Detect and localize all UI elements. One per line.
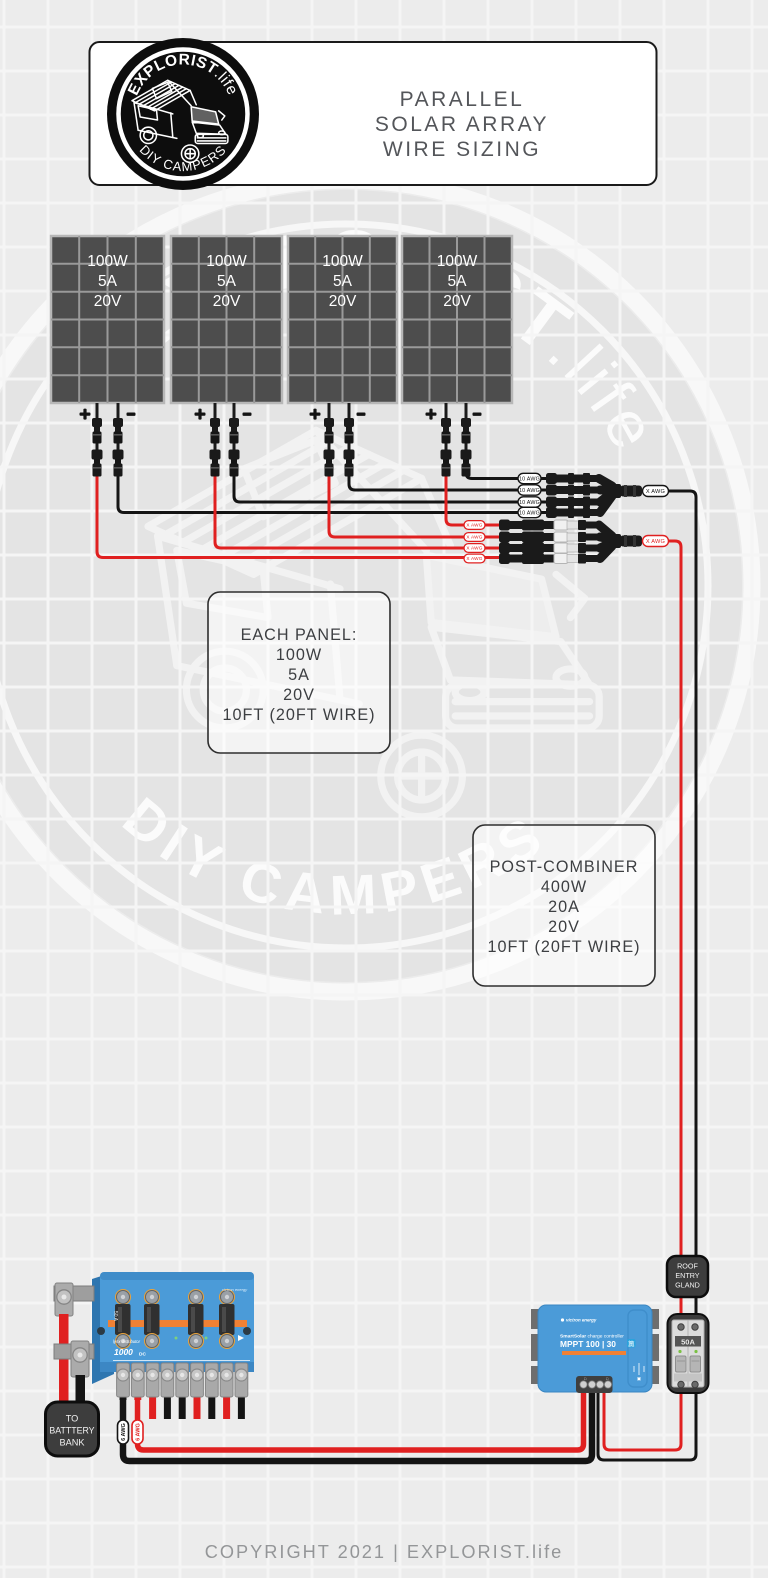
svg-text:DC: DC bbox=[139, 1352, 146, 1358]
svg-text:5A: 5A bbox=[333, 273, 353, 290]
svg-text:SOLAR ARRAY: SOLAR ARRAY bbox=[375, 113, 549, 136]
svg-text:100W: 100W bbox=[276, 646, 322, 664]
svg-text:ROOF: ROOF bbox=[677, 1262, 698, 1271]
svg-text:20V: 20V bbox=[94, 293, 122, 310]
svg-text:X AWG: X AWG bbox=[646, 489, 665, 495]
svg-text:10FT (20FT WIRE): 10FT (20FT WIRE) bbox=[487, 938, 640, 956]
svg-text:BANK: BANK bbox=[59, 1438, 85, 1448]
svg-text:victron energy: victron energy bbox=[222, 1287, 248, 1292]
svg-text:PARALLEL: PARALLEL bbox=[400, 88, 525, 111]
svg-text:X AWG: X AWG bbox=[646, 539, 665, 545]
svg-text:5A: 5A bbox=[98, 273, 118, 290]
svg-text:10FT (20FT WIRE): 10FT (20FT WIRE) bbox=[222, 706, 375, 724]
svg-text:EACH PANEL:: EACH PANEL: bbox=[241, 626, 358, 644]
svg-text:20V: 20V bbox=[283, 686, 315, 704]
svg-text:20A: 20A bbox=[548, 898, 580, 916]
svg-text:6 AWG: 6 AWG bbox=[121, 1423, 127, 1441]
svg-text:100W: 100W bbox=[206, 253, 247, 270]
svg-text:50 A: 50 A bbox=[112, 1311, 118, 1322]
svg-text:100W: 100W bbox=[87, 253, 128, 270]
svg-text:10 AWG: 10 AWG bbox=[519, 510, 540, 516]
svg-text:5A: 5A bbox=[288, 666, 310, 684]
svg-text:6 AWG: 6 AWG bbox=[136, 1423, 142, 1441]
svg-text:TO: TO bbox=[66, 1414, 79, 1424]
svg-text:20V: 20V bbox=[329, 293, 357, 310]
svg-text:MPPT 100 | 30: MPPT 100 | 30 bbox=[560, 1339, 616, 1349]
svg-text:10 AWG: 10 AWG bbox=[519, 476, 540, 482]
svg-text:䉛: 䉛 bbox=[628, 1339, 635, 1348]
svg-text:BATTTERY: BATTTERY bbox=[49, 1426, 94, 1436]
svg-text:50A: 50A bbox=[681, 1338, 695, 1347]
svg-text:100W: 100W bbox=[437, 253, 478, 270]
svg-text:WIRE SIZING: WIRE SIZING bbox=[383, 138, 541, 161]
svg-text:COPYRIGHT 2021 | EXPLORIST.lif: COPYRIGHT 2021 | EXPLORIST.life bbox=[205, 1542, 564, 1562]
svg-text:GLAND: GLAND bbox=[675, 1281, 700, 1290]
svg-text:20V: 20V bbox=[548, 918, 580, 936]
svg-text:5A: 5A bbox=[448, 273, 468, 290]
svg-text:20V: 20V bbox=[443, 293, 471, 310]
svg-text:lynx distributor: lynx distributor bbox=[113, 1339, 141, 1344]
svg-text:ENTRY: ENTRY bbox=[675, 1271, 699, 1280]
svg-text:10 AWG: 10 AWG bbox=[519, 500, 540, 506]
svg-text:400W: 400W bbox=[541, 878, 587, 896]
svg-text:10 AWG: 10 AWG bbox=[519, 488, 540, 494]
svg-text:POST-COMBINER: POST-COMBINER bbox=[490, 858, 639, 876]
svg-text:▣: ▣ bbox=[637, 1376, 642, 1381]
svg-text:victron energy: victron energy bbox=[566, 1318, 597, 1323]
svg-text:100W: 100W bbox=[322, 253, 363, 270]
svg-text:X AWG: X AWG bbox=[466, 523, 482, 528]
svg-text:X AWG: X AWG bbox=[466, 556, 482, 561]
svg-text:20V: 20V bbox=[213, 293, 241, 310]
svg-text:X AWG: X AWG bbox=[466, 535, 482, 540]
svg-text:X AWG: X AWG bbox=[466, 546, 482, 551]
svg-text:1000: 1000 bbox=[114, 1347, 133, 1357]
svg-text:5A: 5A bbox=[217, 273, 237, 290]
